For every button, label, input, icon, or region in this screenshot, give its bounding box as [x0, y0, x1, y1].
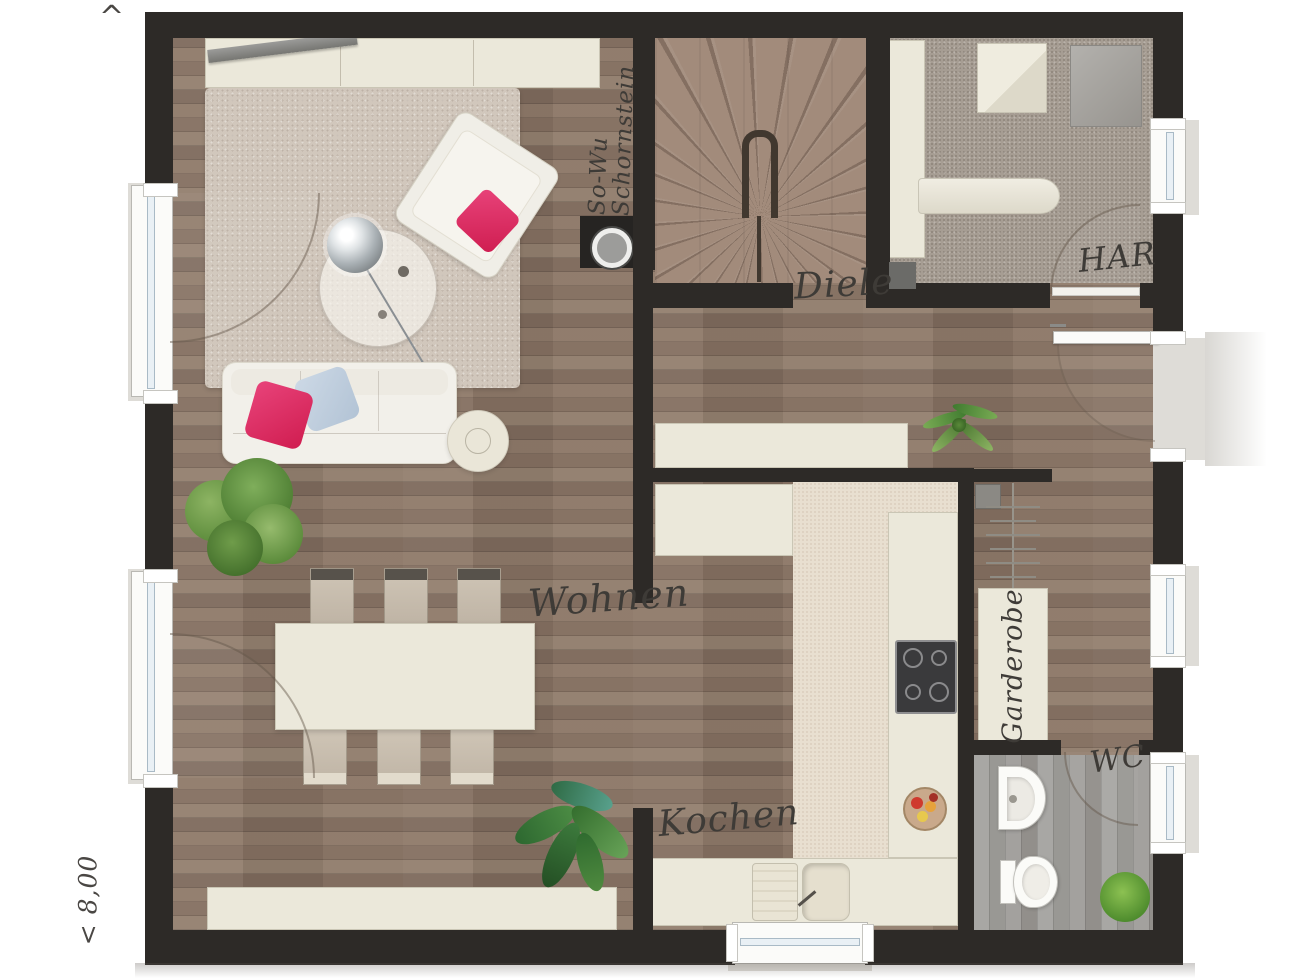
hall-window-glass [1166, 578, 1174, 654]
window-jamb [1150, 842, 1186, 854]
exterior-wall-top [145, 12, 1183, 38]
chair-back [378, 773, 420, 784]
exterior-wall-left [145, 12, 173, 187]
window-jamb [862, 924, 874, 962]
dining-table [275, 623, 535, 730]
interior-wall-kitchen-north [648, 468, 968, 482]
dimension-left: < 8,00 [74, 855, 103, 946]
sink-drainboard [752, 863, 798, 921]
exterior-wall-right [1153, 658, 1183, 760]
fruit [911, 797, 923, 809]
exterior-wall-right [1153, 12, 1183, 128]
coat-hook [986, 562, 1040, 564]
wc-plant [1100, 872, 1150, 922]
door-jamb [1150, 448, 1186, 462]
chair-back [451, 773, 493, 784]
ironing-board [918, 178, 1060, 214]
washing-machine [977, 43, 1047, 113]
dining-chair [310, 568, 354, 625]
floor-plan: Wohnen Kochen Diele HAR WC Garderobe So-… [0, 0, 1304, 978]
har-window-glass [1166, 132, 1174, 200]
window-jamb [1150, 202, 1186, 214]
fruit [925, 801, 936, 812]
fruit [917, 811, 928, 822]
exterior-wall-right [1153, 206, 1183, 345]
coat-hook [990, 520, 1036, 522]
coffee-table-item [398, 266, 409, 277]
interior-wall-below-chimney [633, 268, 653, 603]
window-jamb [1150, 752, 1186, 764]
window-jamb [1150, 656, 1186, 668]
terrace-door-upper-glass [147, 193, 155, 389]
marker-top: ^ [99, 0, 124, 35]
burner [931, 650, 947, 666]
door-jamb [1150, 331, 1186, 345]
side-table-ring [465, 428, 491, 454]
sofa-tuft [378, 371, 379, 431]
chair-back [385, 569, 427, 580]
exterior-wall-right [1153, 450, 1183, 573]
room-label-har: HAR [1076, 234, 1158, 280]
burner [929, 682, 949, 702]
hall-sideboard [655, 423, 908, 468]
interior-wall-har-bottom [1140, 283, 1153, 308]
har-cabinet [888, 40, 925, 258]
tree-foliage [207, 520, 263, 576]
chair-back [458, 569, 500, 580]
coat-hook [990, 548, 1036, 550]
room-label-diele: Diele [793, 261, 895, 307]
interior-wall-kitchen-east [958, 468, 974, 930]
dining-chair [450, 728, 494, 785]
dining-chair [377, 728, 421, 785]
entry-porch [1183, 338, 1205, 460]
interior-wall-garderobe-north [968, 469, 1052, 482]
coat-hooks [986, 506, 1042, 586]
window-jamb [1150, 564, 1186, 576]
exterior-wall-bottom [865, 930, 1183, 965]
chimney-annotation-line2: Schornstein [609, 65, 638, 217]
indoor-tree [185, 458, 310, 583]
interior-wall-stairs-bottom [633, 283, 793, 308]
wc-toilet [1000, 856, 1058, 908]
chimney-pipe [592, 228, 632, 268]
entry-porch-fade [1205, 332, 1267, 466]
sideboard-divider [473, 40, 474, 86]
stairs-newel-line [757, 216, 761, 282]
entry-door-handle [1050, 324, 1066, 327]
exterior-wall-left [145, 397, 173, 573]
room-label-garderobe: Garderobe [998, 588, 1029, 743]
coat-hook [990, 576, 1036, 578]
stairs-handrail [742, 130, 778, 218]
burner [903, 648, 923, 668]
dining-chair [457, 568, 501, 625]
wc-window-glass [1166, 766, 1174, 840]
coat-hook [986, 506, 1040, 508]
wc-sink-drain [1009, 795, 1017, 803]
chimney-annotation: So-Wu Schornstein [585, 64, 639, 217]
coat-hook [986, 534, 1040, 536]
cooktop [895, 640, 957, 714]
fruit [929, 793, 938, 802]
entry-door-opening [1153, 345, 1183, 450]
building-shadow [135, 963, 1195, 978]
sink-basin [802, 863, 850, 921]
kitchen-sink [752, 863, 852, 921]
dining-chair [384, 568, 428, 625]
dryer [1070, 45, 1142, 127]
terrace-door-lower-glass [147, 579, 155, 772]
window-jamb [143, 390, 178, 404]
window-jamb [143, 569, 178, 583]
palm-plant [918, 392, 1002, 464]
burner [905, 684, 921, 700]
palm-center [952, 418, 966, 432]
window-jamb [1150, 118, 1186, 130]
har-door-leaf [1052, 287, 1140, 296]
chair-back [311, 569, 353, 580]
ball-lamp [327, 217, 383, 273]
sideboard-divider [340, 40, 341, 86]
window-jamb [726, 924, 738, 962]
fruit-bowl [903, 787, 947, 831]
toilet-seat [1022, 864, 1050, 900]
interior-wall-passage-stub [633, 808, 653, 930]
kitchen-cabinets [655, 484, 793, 556]
leaf-plant [508, 778, 638, 896]
exterior-wall-bottom [145, 930, 735, 965]
entry-door-leaf [1053, 331, 1159, 344]
kitchen-window-glass [740, 938, 860, 946]
coffee-table-item [378, 310, 387, 319]
